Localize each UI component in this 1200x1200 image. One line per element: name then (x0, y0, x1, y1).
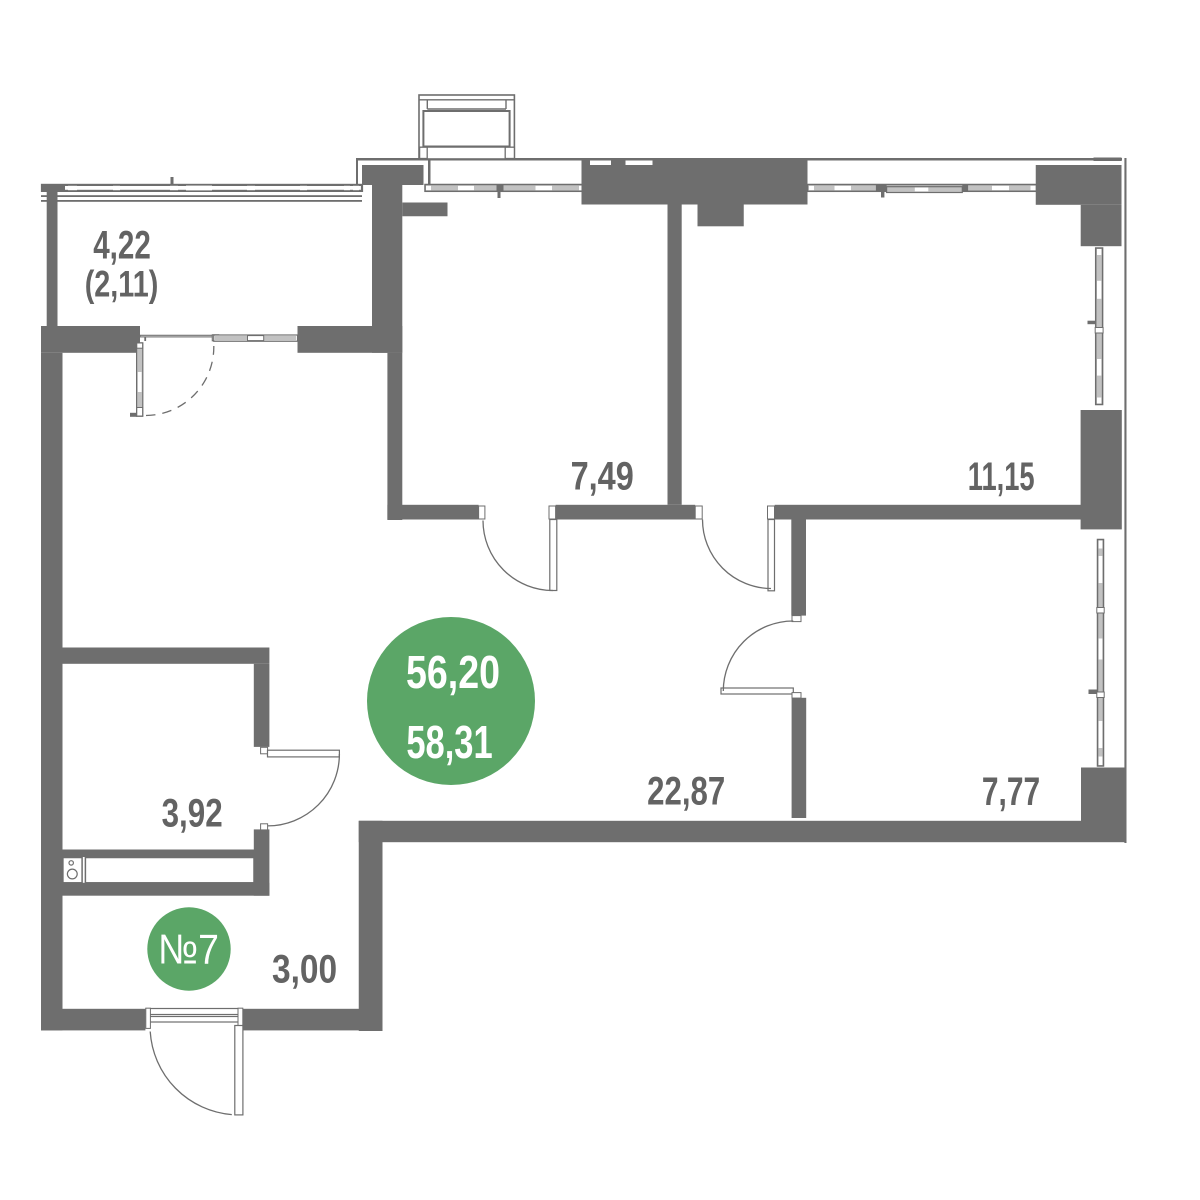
svg-text:56,20: 56,20 (406, 646, 500, 697)
svg-text:3,92: 3,92 (162, 790, 223, 836)
svg-text:22,87: 22,87 (647, 769, 725, 814)
svg-text:7,77: 7,77 (982, 770, 1040, 814)
svg-text:4,22: 4,22 (93, 223, 151, 267)
svg-text:7,49: 7,49 (571, 453, 634, 498)
svg-text:11,15: 11,15 (968, 455, 1035, 499)
svg-text:3,00: 3,00 (272, 947, 337, 991)
svg-text:(2,11): (2,11) (85, 264, 159, 305)
svg-text:58,31: 58,31 (406, 716, 492, 768)
svg-text:№7: №7 (158, 927, 219, 973)
